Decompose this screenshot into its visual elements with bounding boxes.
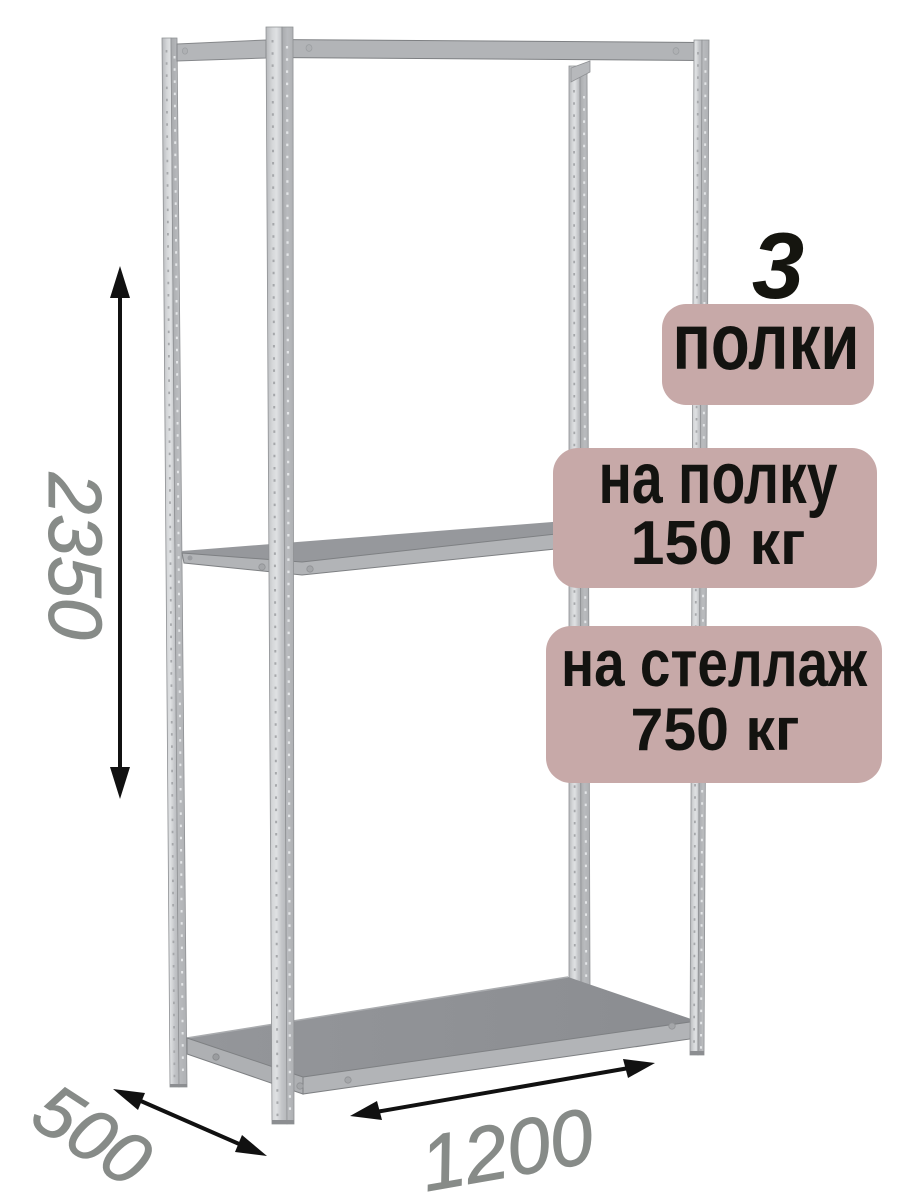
svg-text:750 кг: 750 кг [631, 696, 800, 763]
svg-text:1200: 1200 [414, 1091, 600, 1200]
svg-text:2350: 2350 [33, 472, 117, 640]
svg-text:на полку: на полку [599, 439, 838, 519]
svg-text:500: 500 [19, 1068, 165, 1200]
svg-text:150 кг: 150 кг [631, 509, 806, 578]
svg-text:полки: полки [673, 297, 860, 386]
svg-text:на стеллаж: на стеллаж [561, 626, 868, 700]
